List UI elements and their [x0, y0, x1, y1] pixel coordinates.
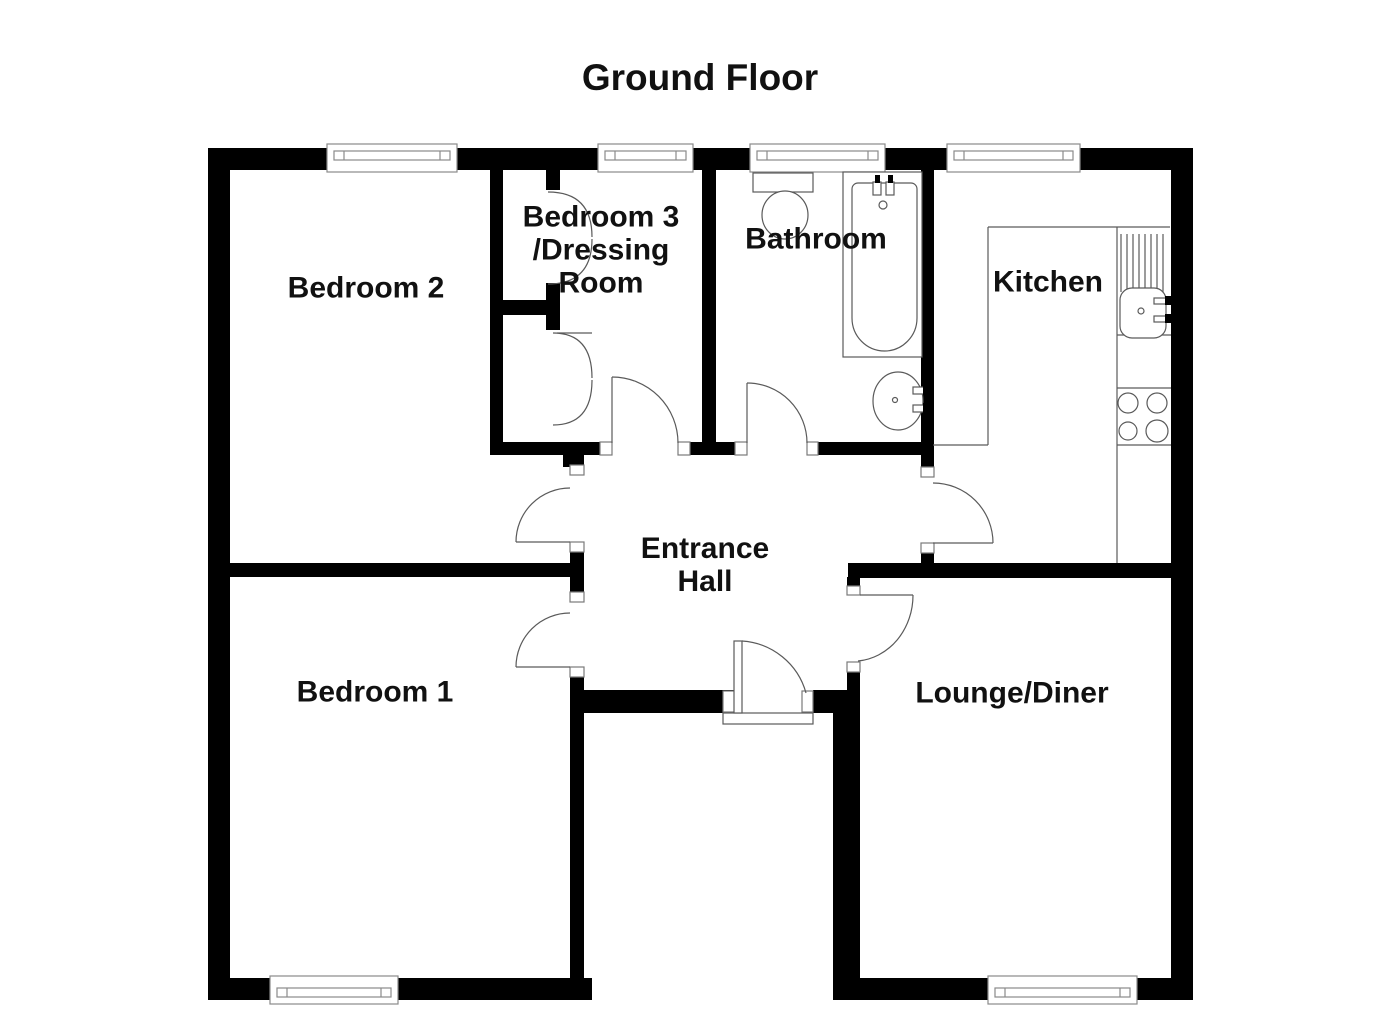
sink-tap-tip [1165, 296, 1171, 305]
bedroom-2-door-arc [516, 488, 570, 542]
page-title: Ground Floor [582, 57, 818, 99]
room-label-kitchen: Kitchen [993, 266, 1103, 299]
floor-plan: Ground Floor Bedroom 2Bedroom 3 /Dressin… [0, 0, 1400, 1018]
door-jamb [570, 465, 584, 475]
door-opening [921, 477, 934, 543]
hob-ring [1146, 420, 1168, 442]
wall [584, 690, 735, 713]
lounge-door-arc [858, 595, 913, 661]
basin-tap-tip [923, 403, 930, 413]
bathroom-basin [873, 372, 923, 430]
door-jamb [570, 542, 584, 552]
room-label-lounge-diner: Lounge/Diner [915, 677, 1108, 710]
sink-tap-tip [1165, 314, 1171, 323]
door-opening [747, 442, 807, 455]
wall [230, 563, 570, 577]
room-label-bathroom: Bathroom [745, 223, 887, 256]
wall [208, 148, 230, 1000]
hob-ring [1118, 393, 1138, 413]
window-sash [757, 151, 878, 160]
wall [848, 563, 1171, 578]
room-label-bedroom-3-dressing-room: Bedroom 3 /Dressing Room [523, 201, 680, 300]
bathroom-door-arc [747, 383, 807, 443]
door-opening [612, 442, 678, 455]
door-jamb [807, 442, 818, 455]
kitchen-door-arc [933, 483, 993, 543]
room-label-bedroom-1: Bedroom 1 [297, 676, 454, 709]
door-opening [570, 475, 584, 542]
door-jamb [921, 543, 934, 553]
door-jamb [600, 442, 612, 455]
basin-tap-tip [923, 385, 930, 395]
door-jamb [570, 667, 584, 677]
front-door-threshold [723, 713, 813, 724]
floor-plan-svg [0, 0, 1400, 1018]
window-sash [605, 151, 686, 160]
closet-door-lower-a-arc [553, 333, 592, 378]
closet-door-lower-b-arc [553, 380, 592, 425]
wall [813, 690, 860, 713]
bedroom-1-door-arc [516, 613, 570, 667]
wall [208, 978, 592, 1000]
door-jamb [570, 592, 584, 602]
window-sash [277, 988, 391, 997]
wall [546, 170, 560, 190]
bathtub [843, 172, 922, 357]
door-opening [847, 595, 860, 662]
door-jamb [847, 662, 860, 672]
door-jamb [921, 467, 934, 477]
door-opening [570, 602, 584, 667]
wall [490, 300, 557, 315]
door-jamb [802, 691, 813, 712]
bath-tap-tip [888, 175, 893, 183]
bath-tap [886, 182, 894, 195]
door-jamb [723, 691, 735, 712]
room-label-entrance-hall: Entrance Hall [641, 532, 769, 598]
wall [1171, 148, 1193, 1000]
front-door-arc [742, 641, 806, 693]
window-sash [995, 988, 1130, 997]
door-jamb [735, 442, 747, 455]
door-jamb [847, 586, 860, 595]
hob-ring [1147, 393, 1167, 413]
room-label-bedroom-2: Bedroom 2 [288, 272, 445, 305]
bath-tap-tip [875, 175, 880, 183]
front-door-leaf [734, 641, 742, 713]
toilet-tank [753, 173, 813, 192]
window-sash [334, 151, 450, 160]
door-jamb [678, 442, 690, 455]
bath-tap [873, 182, 881, 195]
wall [702, 170, 716, 455]
dressing-room-door-arc [612, 377, 678, 443]
window-sash [954, 151, 1073, 160]
hob-ring [1119, 422, 1137, 440]
wall [833, 713, 860, 1000]
